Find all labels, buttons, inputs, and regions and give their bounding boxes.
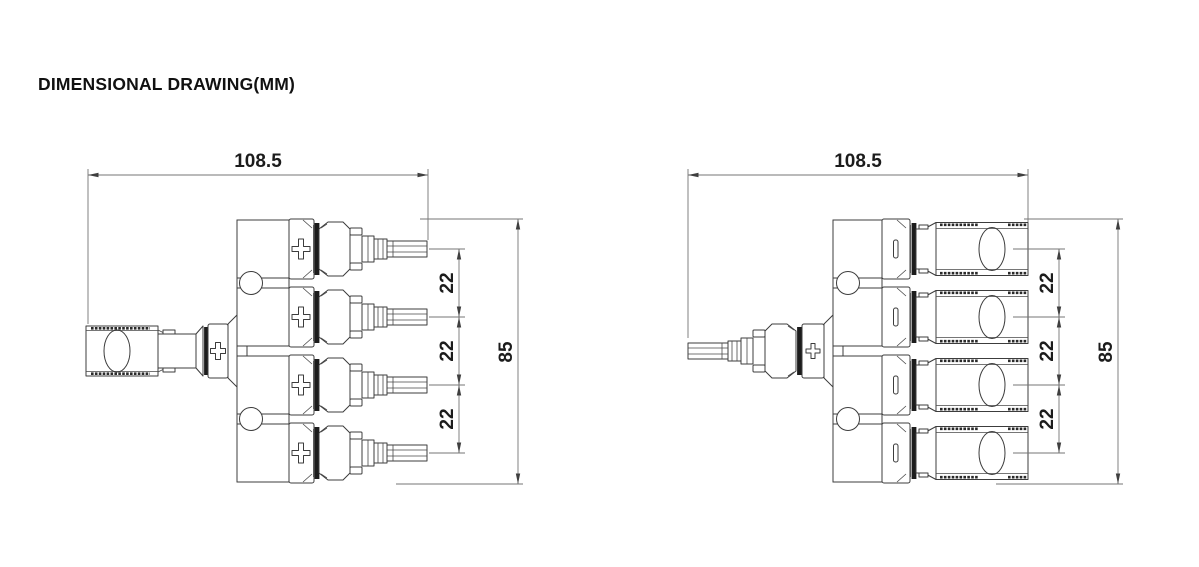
dim-label-width-left: 108.5 xyxy=(234,151,282,172)
mount-hole xyxy=(837,408,860,431)
right-view-stem-male xyxy=(688,315,833,387)
dimensional-drawing: 108.5 85 22 22 22 xyxy=(0,0,1199,567)
dim-label-pitch-left-3: 22 xyxy=(437,408,458,429)
dim-label-height-right: 85 xyxy=(1096,341,1117,363)
right-view-part xyxy=(688,219,1028,483)
left-view: 108.5 85 22 22 22 xyxy=(86,151,523,484)
drawing-sheet: DIMENSIONAL DRAWING(MM) xyxy=(0,0,1199,567)
left-view-stem-female xyxy=(86,315,237,387)
right-view: 108.5 85 22 22 22 xyxy=(688,151,1123,484)
left-view-part xyxy=(86,219,427,483)
mount-hole xyxy=(837,272,860,295)
mount-hole xyxy=(240,408,263,431)
dim-label-pitch-left-1: 22 xyxy=(437,272,458,293)
dim-label-pitch-right-2: 22 xyxy=(1037,340,1058,361)
mount-hole xyxy=(240,272,263,295)
dim-label-pitch-right-1: 22 xyxy=(1037,272,1058,293)
dim-label-pitch-left-2: 22 xyxy=(437,340,458,361)
dim-label-width-right: 108.5 xyxy=(834,151,882,172)
dim-label-pitch-right-3: 22 xyxy=(1037,408,1058,429)
dim-label-height-left: 85 xyxy=(496,341,517,363)
